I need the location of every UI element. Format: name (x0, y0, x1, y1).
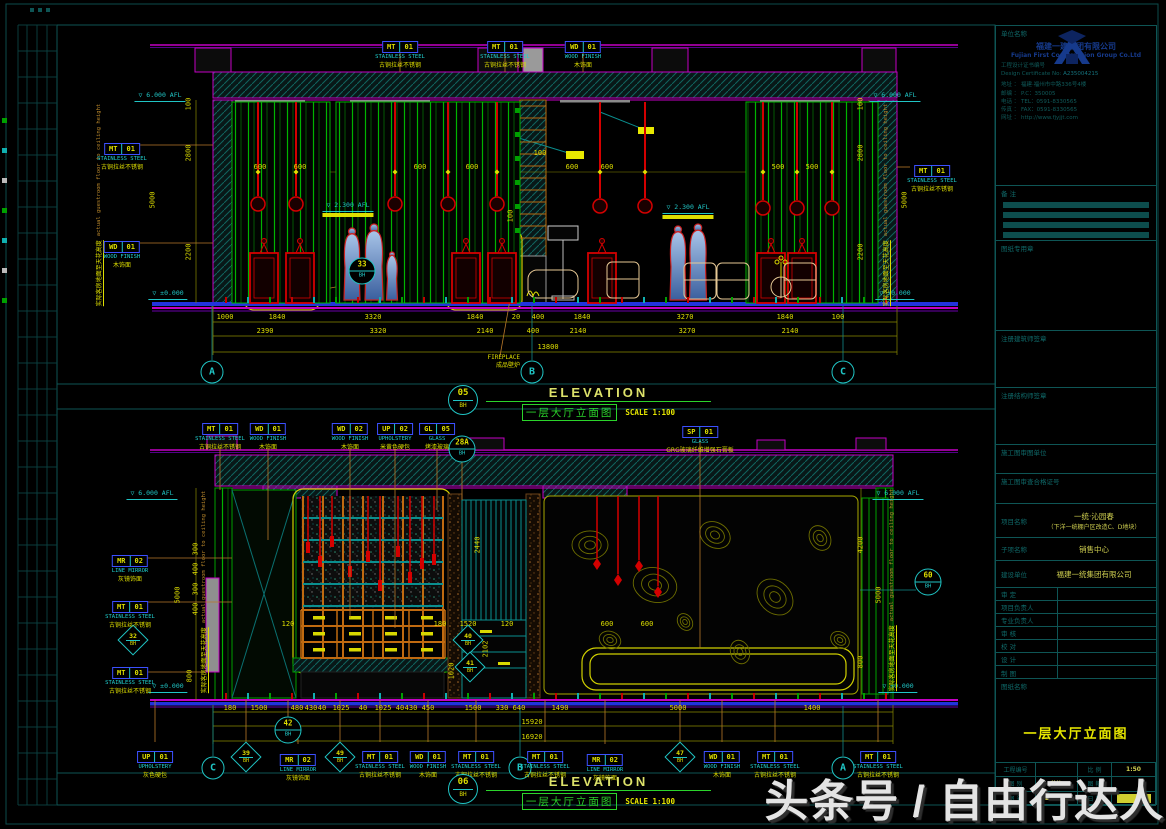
level-mark: ▽ 6.000 AFL (872, 490, 923, 500)
tb-notes-bars (1001, 202, 1151, 238)
level-mark: ▽ 2.300 AFL (322, 202, 373, 217)
tb-review-cert-label: 施工图审查合格证号 (1001, 476, 1151, 486)
dimension-text: 3320 (365, 314, 382, 321)
dimension-text: 180 (224, 705, 237, 712)
material-callout-MT01: MT01STAINLESS STEEL古铜拉丝不锈钢 (355, 744, 405, 779)
dimension-text: 2800 (186, 145, 193, 162)
tb-project-name-2: （下洋一统棚户区改造C、D地块） (1037, 522, 1151, 531)
dimension-text: 600 (294, 164, 307, 171)
tb-drawing-title: 一层大厅立面图 (1001, 723, 1151, 742)
level-mark: ▽ 2.300 AFL (662, 204, 713, 219)
tb-review-cert-section: 施工图审查合格证号 (996, 474, 1156, 504)
tb-project-label: 项目名称 (1001, 516, 1037, 526)
tb-subproject-label: 子项名称 (1001, 544, 1037, 554)
dimension-text: 430 (305, 705, 318, 712)
lower-title-sheet: BH (449, 790, 477, 799)
dimension-text: 430 (405, 705, 418, 712)
material-callout-WD02: WD02WOOD FINISH木饰面 (332, 416, 368, 451)
dimension-text: 120 (282, 621, 295, 628)
material-callout-WD01: WD01WOOD FINISH木饰面 (565, 34, 601, 69)
tb-contact-row: 传真 ： FAX：0591-8330565 (1001, 106, 1151, 114)
dimension-text: 2140 (477, 328, 494, 335)
dimension-text: 1025 (333, 705, 350, 712)
tb-review-unit-section: 施工图审图单位 (996, 445, 1156, 474)
tb-contact-row: 网址 ： http://www.fjyjjt.com (1001, 114, 1151, 122)
tb-contact-row: 邮编 ： P.C：350005 (1001, 90, 1151, 98)
dimension-text: 100 (508, 210, 515, 223)
detail-diamond-41: 41BH (455, 652, 485, 682)
tb-client-label: 建设单位 (1001, 569, 1037, 579)
detail-diamond-40: 40BH (453, 625, 483, 655)
dimension-text: 1840 (269, 314, 286, 321)
dimension-text: 640 (513, 705, 526, 712)
floor-to-ceiling-note: 实际客房地面至天花高度actual guestroom floor to cei… (881, 104, 891, 306)
material-callout-SP01: SP01GLASSGRG玻璃纤维增强石膏板 (666, 419, 733, 454)
detail-diamond-39: 39BH (231, 742, 261, 772)
tb-notes-section: 备 注 (996, 186, 1156, 241)
detail-callout-33: 33BH (349, 258, 376, 285)
dimension-text: 2140 (570, 328, 587, 335)
tb-sign-row: 审 核 (996, 627, 1156, 640)
fireplace-label: FIREPLACE成品壁炉 (487, 354, 520, 370)
tb-sign-row: 设 计 (996, 653, 1156, 666)
lower-title-bubble: 06 BH (448, 774, 478, 804)
dimension-text: 2200 (186, 244, 193, 261)
tb-subproject-value: 销售中心 (1037, 544, 1151, 555)
dimension-text: 400 (527, 328, 540, 335)
dimension-text: 1500 (465, 705, 482, 712)
tb-review-unit-label: 施工图审图单位 (1001, 447, 1151, 457)
tb-sign-row: 制 图 (996, 666, 1156, 679)
tb-client-section: 建设单位 福建一统集团有限公司 (996, 561, 1156, 588)
material-callout-MT01: MT01STAINLESS STEEL古铜拉丝不锈钢 (195, 416, 245, 451)
tb-drawing-name-section: 图纸名称 一层大厅立面图 (996, 679, 1156, 763)
material-callout-MT01: MT01STAINLESS STEEL古铜拉丝不锈钢 (105, 660, 155, 695)
company-logo (996, 28, 1148, 70)
detail-callout-42: 42BH (275, 717, 302, 744)
dimension-text: 5000 (876, 587, 883, 604)
dimension-text: 40 (318, 705, 326, 712)
dimension-text: 5000 (902, 192, 909, 209)
material-callout-GL05: GL05GLASS烤漆玻璃 (419, 416, 455, 451)
level-mark: ▽ 6.000 AFL (134, 92, 185, 102)
upper-title-en: ELEVATION (486, 385, 711, 402)
tb-struct-seal-label: 注册结构师签章 (1001, 390, 1151, 400)
tb-struct-seal-section: 注册结构师签章 (996, 388, 1156, 445)
tb-notes-label: 备 注 (1001, 188, 1151, 198)
dimension-text: 100 (534, 150, 547, 157)
dimension-text: 600 (254, 164, 267, 171)
upper-title-bubble: 05 BH (448, 385, 478, 415)
floor-to-ceiling-note: 实际客房地面至天花高度actual guestroom floor to cei… (199, 491, 209, 693)
dimension-text: 15920 (521, 719, 542, 726)
dimension-text: 1840 (777, 314, 794, 321)
dimension-text: 1025 (375, 705, 392, 712)
dimension-text: 1000 (217, 314, 234, 321)
material-callout-MT01: MT01STAINLESS STEEL古铜拉丝不锈钢 (480, 34, 530, 69)
dimension-text: 2440 (475, 537, 482, 554)
dimension-text: 2800 (858, 145, 865, 162)
dimension-text: 5000 (670, 705, 687, 712)
dimension-text: 480 (291, 705, 304, 712)
upper-title-sheet: BH (449, 401, 477, 410)
dimension-text: 2140 (782, 328, 799, 335)
dimension-text: 180 (434, 621, 447, 628)
material-callout-WD01: WD01WOOD FINISH木饰面 (410, 744, 446, 779)
material-callout-MT01: MT01STAINLESS STEEL古铜拉丝不锈钢 (375, 34, 425, 69)
dimension-text: 40 (396, 705, 404, 712)
dimension-text: 1400 (804, 705, 821, 712)
tb-cert-en: Design Certificate No: (1001, 71, 1061, 77)
dimension-text: 800 (187, 670, 194, 683)
detail-diamond-49: 49BH (325, 742, 355, 772)
material-callout-UP02: UP02UPHOLSTERY米黄色硬包 (377, 416, 413, 451)
dimension-text: 330 (496, 705, 509, 712)
tb-company-section: 单位名称 福建一建集团有限公司 Fujian First Constructio… (996, 26, 1156, 186)
tb-sign-row: 校 对 (996, 640, 1156, 653)
dimension-text: 5000 (175, 587, 182, 604)
tb-arch-seal-section: 注册建筑师签章 (996, 331, 1156, 388)
tb-arch-seal-label: 注册建筑师签章 (1001, 333, 1151, 343)
dimension-text: 1490 (552, 705, 569, 712)
grid-bubble-A: A (201, 361, 224, 384)
watermark: 头条号 / 自由行达人 (764, 765, 1164, 829)
floor-to-ceiling-note: 实际客房地面至天花高度actual guestroom floor to cei… (94, 104, 104, 306)
dimension-text: 16920 (521, 734, 542, 741)
upper-elevation-title: 05 BH ELEVATION 一层大厅立面图 SCALE 1:100 (448, 385, 711, 421)
lower-title-scale: SCALE 1:100 (625, 797, 675, 806)
title-block: 单位名称 福建一建集团有限公司 Fujian First Constructio… (995, 25, 1157, 805)
material-callout-MT01: MT01STAINLESS STEEL古铜拉丝不锈钢 (907, 158, 957, 193)
dimension-text: 1500 (251, 705, 268, 712)
tb-sign-row: 审 定 (996, 588, 1156, 601)
lower-title-number: 06 (453, 776, 473, 790)
grid-bubble-B: B (521, 361, 544, 384)
tb-seal-label: 图纸专用章 (1001, 243, 1151, 253)
dimension-text: 3270 (677, 314, 694, 321)
tb-contact-row: 电话 ： TEL：0591-8330565 (1001, 98, 1151, 106)
dimension-text: 600 (601, 164, 614, 171)
dimension-text: 450 (422, 705, 435, 712)
dimension-text: 600 (566, 164, 579, 171)
material-callout-UP01: UP01UPHOLSTERY灰色硬包 (137, 744, 173, 779)
detail-diamond-47: 47BH (665, 742, 695, 772)
material-callout-MR02: MR02LINE MIRROR灰镜饰面 (112, 548, 148, 583)
floor-to-ceiling-note: 实际客房地面至天花高度actual guestroom floor to cei… (887, 489, 897, 691)
level-mark: ▽ 6.000 AFL (126, 490, 177, 500)
dimension-text: 2200 (858, 244, 865, 261)
dimension-text: 1840 (574, 314, 591, 321)
tb-subproject-section: 子项名称 销售中心 (996, 538, 1156, 561)
grid-bubble-C: C (832, 361, 855, 384)
dimension-text: 600 (466, 164, 479, 171)
upper-title-cn: 一层大厅立面图 (522, 404, 618, 421)
grid-bubble-C: C (202, 757, 225, 780)
dimension-text: 4200 (858, 537, 865, 554)
dimension-text: 13800 (537, 344, 558, 351)
tb-client-value: 福建一统集团有限公司 (1037, 569, 1151, 580)
dimension-text: 3320 (370, 328, 387, 335)
dimension-text: 800 (858, 656, 865, 669)
dimension-text: 5000 (150, 192, 157, 209)
dimension-text: 1840 (467, 314, 484, 321)
upper-title-number: 05 (453, 387, 473, 401)
tb-sign-row: 项目负责人 (996, 601, 1156, 614)
tb-seal-section: 图纸专用章 (996, 241, 1156, 331)
lower-title-cn: 一层大厅立面图 (522, 793, 618, 810)
dimension-text: 600 (641, 621, 654, 628)
lower-title-en: ELEVATION (486, 774, 711, 791)
dimension-text: 600 (414, 164, 427, 171)
dimension-text: 100 (858, 98, 865, 111)
dimension-text: 2390 (257, 328, 274, 335)
material-callout-MR02: MR02LINE MIRROR灰镜饰面 (280, 747, 316, 782)
material-callout-WD01: WD01WOOD FINISH木饰面 (104, 234, 140, 269)
dimension-text: 120 (501, 621, 514, 628)
level-mark: ▽ ±0.000 (148, 290, 187, 300)
tb-contact: 地址 ： 福建·福州市中路336号4楼邮编 ： P.C：350005电话 ： T… (1001, 81, 1151, 122)
tb-sign-row: 专业负责人 (996, 614, 1156, 627)
tb-contact-row: 地址 ： 福建·福州市中路336号4楼 (1001, 81, 1151, 89)
tb-sign-rows: 审 定项目负责人专业负责人审 核校 对设 计制 图 (996, 588, 1156, 679)
tb-project-section: 项目名称 一统·沁园春 （下洋一统棚户区改造C、D地块） (996, 504, 1156, 538)
dimension-text: 40 (359, 705, 367, 712)
dimension-text: 100 (186, 98, 193, 111)
dimension-text: 500 (806, 164, 819, 171)
dimension-text: 100 (832, 314, 845, 321)
material-callout-MT01: MT01STAINLESS STEEL古铜拉丝不锈钢 (97, 136, 147, 171)
material-callout-WD01: WD01WOOD FINISH木饰面 (250, 416, 286, 451)
tb-cert-no: A235004215 (1063, 71, 1098, 77)
tb-project-name: 一统·沁园春 (1037, 511, 1151, 522)
upper-title-scale: SCALE 1:100 (625, 408, 675, 417)
dimension-text: 20 (512, 314, 520, 321)
dimension-text: 600 (601, 621, 614, 628)
level-mark: ▽ 6.000 AFL (869, 92, 920, 102)
tb-drawing-name-label: 图纸名称 (1001, 681, 1151, 691)
detail-diamond-32: 32BH (118, 625, 148, 655)
detail-callout-60: 60BH (915, 569, 942, 596)
dimension-text: 3270 (679, 328, 696, 335)
cad-drawing-sheet: MT01STAINLESS STEEL古铜拉丝不锈钢MT01STAINLESS … (0, 0, 1166, 829)
dimension-text: 500 (772, 164, 785, 171)
dimension-text: 400 (532, 314, 545, 321)
material-callout-MT01: MT01STAINLESS STEEL古铜拉丝不锈钢 (105, 594, 155, 629)
level-mark: ▽ ±0.000 (878, 683, 917, 693)
lower-elevation-title: 06 BH ELEVATION 一层大厅立面图 SCALE 1:100 (448, 774, 711, 810)
